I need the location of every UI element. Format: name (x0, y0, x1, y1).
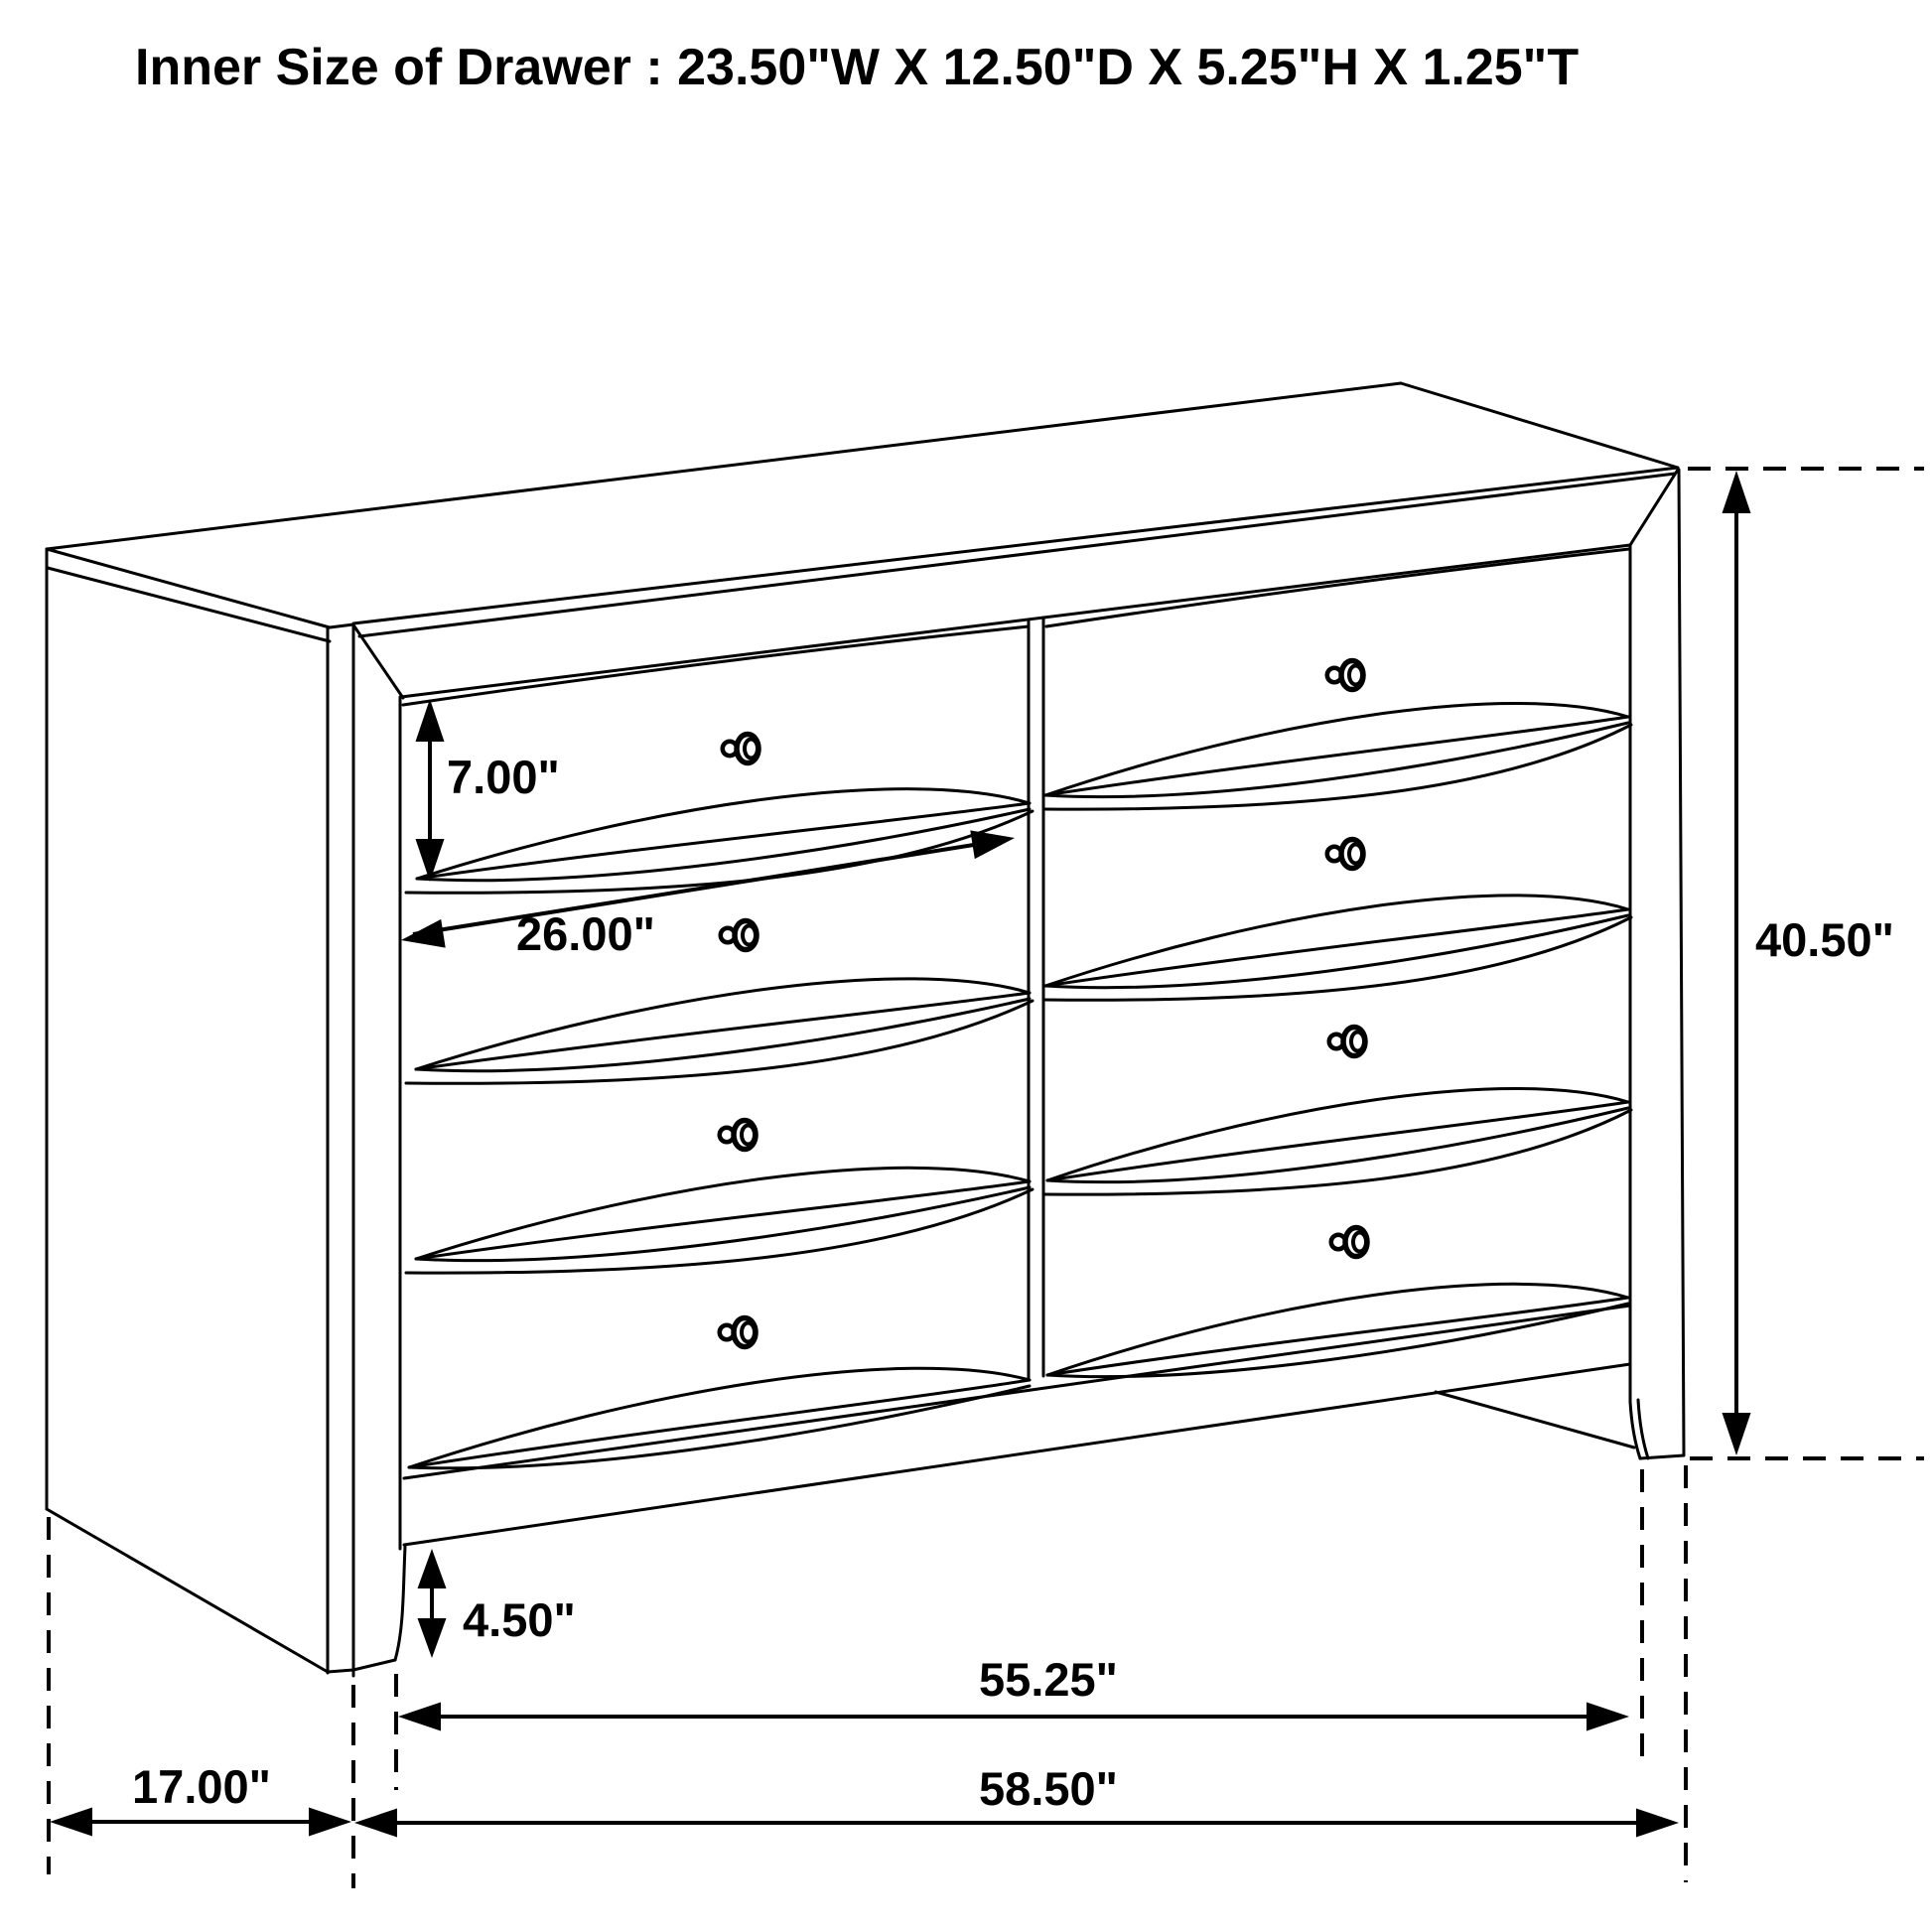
svg-text:55.25": 55.25" (979, 1653, 1118, 1706)
svg-text:Inner Size of Drawer : 23.50"W: Inner Size of Drawer : 23.50"W X 12.50"D… (135, 39, 1579, 96)
svg-text:4.50": 4.50" (463, 1593, 576, 1646)
svg-text:58.50": 58.50" (979, 1762, 1118, 1815)
svg-text:7.00": 7.00" (447, 751, 560, 803)
svg-text:17.00": 17.00" (132, 1760, 271, 1813)
svg-text:40.50": 40.50" (1755, 913, 1894, 966)
svg-text:26.00": 26.00" (516, 907, 655, 960)
